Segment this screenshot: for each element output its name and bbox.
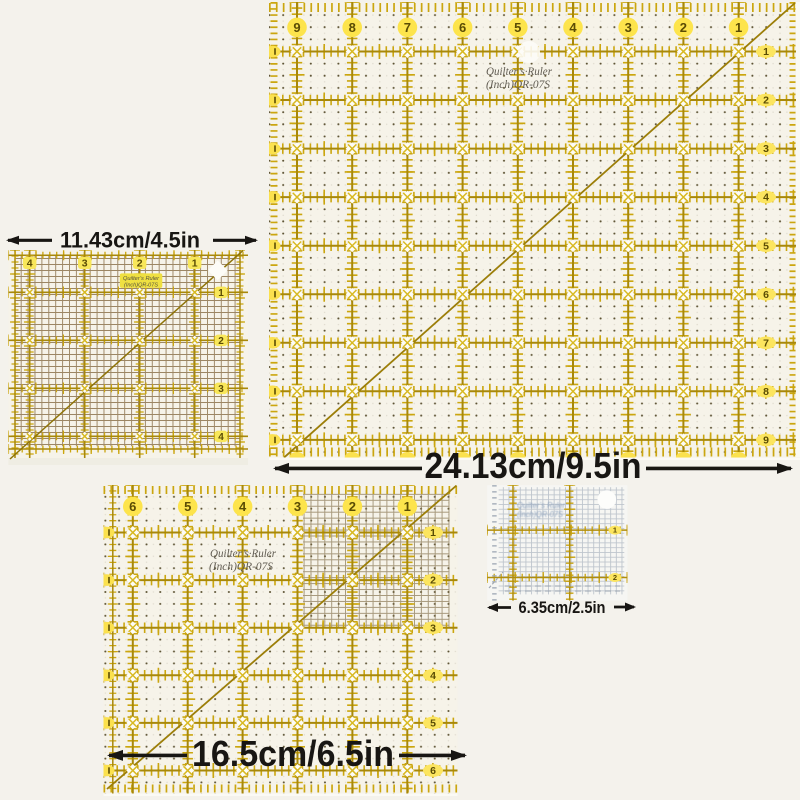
svg-text:4: 4 bbox=[763, 192, 769, 204]
svg-text:8: 8 bbox=[763, 386, 769, 398]
svg-text:(Inch)QR-07S: (Inch)QR-07S bbox=[517, 509, 563, 519]
svg-text:2: 2 bbox=[680, 20, 687, 35]
svg-text:3: 3 bbox=[763, 143, 769, 155]
svg-text:5: 5 bbox=[763, 240, 769, 252]
svg-text:3: 3 bbox=[625, 20, 632, 35]
svg-text:3: 3 bbox=[430, 622, 436, 634]
svg-text:2: 2 bbox=[763, 95, 769, 107]
svg-text:(Inch)QR-07S: (Inch)QR-07S bbox=[209, 561, 273, 573]
svg-text:1: 1 bbox=[763, 46, 769, 58]
svg-text:4: 4 bbox=[569, 20, 577, 35]
svg-text:Quilter’s Ruler: Quilter’s Ruler bbox=[123, 276, 160, 282]
svg-text:6: 6 bbox=[129, 499, 136, 514]
svg-text:(Inch)QR-07S: (Inch)QR-07S bbox=[486, 79, 550, 91]
svg-text:7: 7 bbox=[763, 337, 769, 349]
svg-text:1: 1 bbox=[218, 288, 224, 299]
svg-text:9: 9 bbox=[763, 435, 769, 447]
svg-text:4: 4 bbox=[27, 258, 33, 270]
svg-text:Quilter’s·Ruler: Quilter’s·Ruler bbox=[486, 66, 552, 78]
svg-text:24.13cm/9.5in: 24.13cm/9.5in bbox=[425, 445, 642, 486]
svg-text:5: 5 bbox=[430, 718, 436, 730]
svg-text:1: 1 bbox=[613, 526, 617, 535]
svg-text:11.43cm/4.5in: 11.43cm/4.5in bbox=[60, 228, 200, 253]
svg-text:2: 2 bbox=[218, 336, 224, 347]
svg-text:4: 4 bbox=[239, 499, 247, 514]
svg-text:4: 4 bbox=[218, 432, 224, 443]
svg-text:5: 5 bbox=[184, 499, 191, 514]
svg-text:6: 6 bbox=[430, 765, 436, 777]
svg-text:6.35cm/2.5in: 6.35cm/2.5in bbox=[519, 598, 606, 617]
svg-text:1: 1 bbox=[735, 20, 742, 35]
svg-text:4: 4 bbox=[430, 670, 436, 682]
svg-text:Quilter’s·Ruler: Quilter’s·Ruler bbox=[210, 548, 276, 560]
svg-text:1: 1 bbox=[404, 499, 411, 514]
svg-text:8: 8 bbox=[349, 20, 356, 35]
svg-text:9: 9 bbox=[293, 20, 300, 35]
svg-text:3: 3 bbox=[218, 384, 224, 395]
svg-text:3: 3 bbox=[82, 258, 88, 270]
svg-text:16.5cm/6.5in: 16.5cm/6.5in bbox=[192, 733, 394, 774]
svg-text:(Inch)QR-07S: (Inch)QR-07S bbox=[124, 282, 158, 288]
svg-text:2: 2 bbox=[349, 499, 356, 514]
svg-text:1: 1 bbox=[430, 527, 436, 539]
svg-text:2: 2 bbox=[430, 575, 436, 587]
svg-text:5: 5 bbox=[514, 20, 521, 35]
svg-text:6: 6 bbox=[459, 20, 466, 35]
svg-text:1: 1 bbox=[192, 258, 198, 270]
svg-text:2: 2 bbox=[137, 258, 143, 270]
svg-text:7: 7 bbox=[404, 20, 411, 35]
svg-text:3: 3 bbox=[294, 499, 301, 514]
svg-text:2: 2 bbox=[613, 573, 617, 582]
svg-text:6: 6 bbox=[763, 289, 769, 301]
